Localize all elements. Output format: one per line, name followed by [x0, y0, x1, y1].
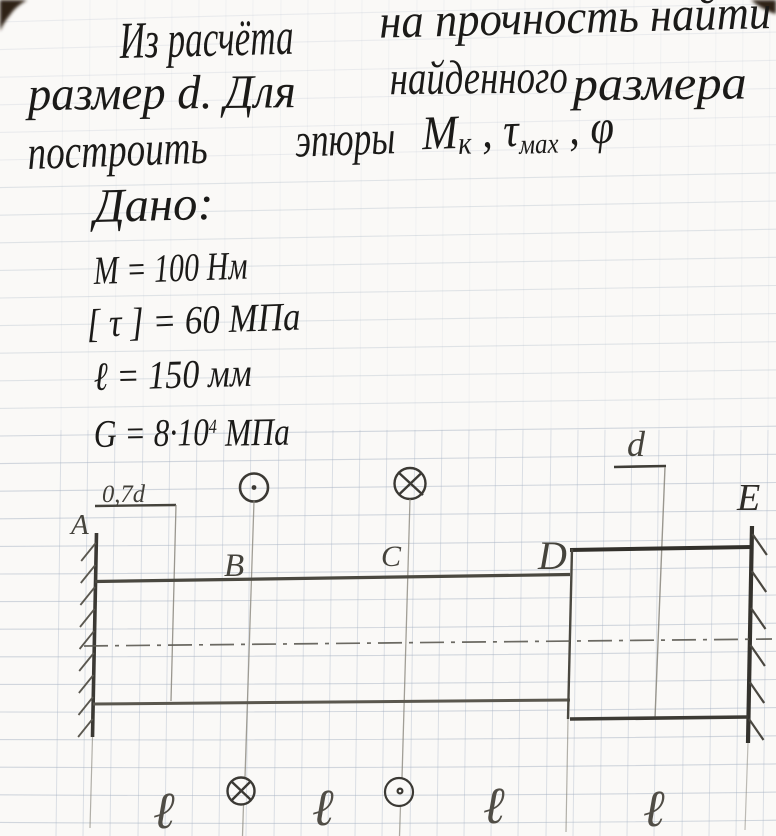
- svg-text:ℓ: ℓ: [643, 781, 665, 836]
- svg-text:[ τ ] = 60 МПа: [ τ ] = 60 МПа: [86, 294, 301, 346]
- svg-text:A: A: [69, 509, 89, 541]
- svg-text:размер d. Для: размер d. Для: [25, 65, 296, 121]
- svg-text:построить: построить: [27, 121, 209, 180]
- svg-text:М = 100 Нм: М = 100 Нм: [92, 243, 248, 293]
- svg-text:E: E: [736, 477, 760, 519]
- svg-text:Из расчёта: Из расчёта: [118, 9, 294, 70]
- svg-text:0,7d: 0,7d: [102, 481, 145, 508]
- svg-text:ℓ = 150 мм: ℓ = 150 мм: [93, 350, 252, 399]
- svg-text:Дано:: Дано:: [89, 177, 214, 233]
- svg-text:найденного: найденного: [389, 50, 568, 105]
- svg-text:d: d: [627, 424, 646, 464]
- svg-text:ℓ: ℓ: [153, 783, 175, 836]
- svg-text:D: D: [537, 533, 567, 578]
- svg-text:эпюры: эпюры: [294, 111, 396, 167]
- svg-text:ℓ: ℓ: [312, 780, 334, 836]
- svg-text:ℓ: ℓ: [483, 778, 505, 835]
- svg-text:C: C: [381, 540, 402, 573]
- svg-text:G = 8·104 МПа: G = 8·104 МПа: [93, 410, 290, 457]
